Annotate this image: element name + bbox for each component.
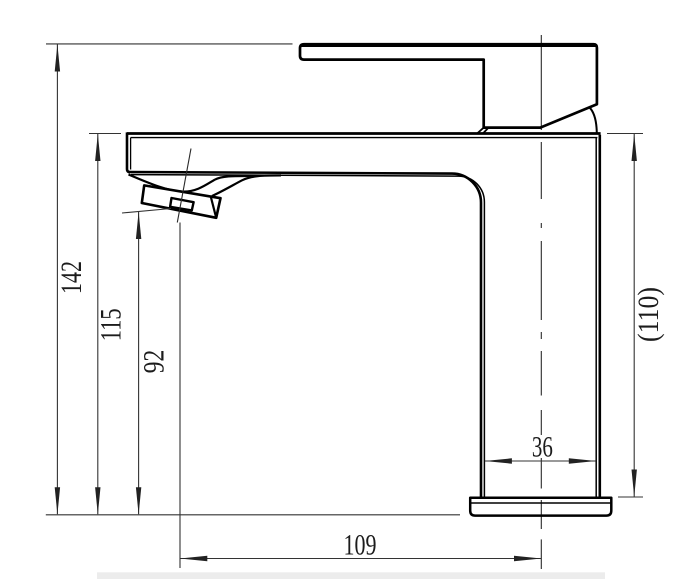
svg-text:115: 115 bbox=[96, 308, 128, 341]
svg-text:(110): (110) bbox=[633, 287, 665, 342]
svg-text:142: 142 bbox=[56, 261, 88, 294]
svg-text:36: 36 bbox=[532, 432, 553, 464]
svg-text:109: 109 bbox=[344, 530, 377, 562]
svg-text:92: 92 bbox=[138, 350, 170, 374]
